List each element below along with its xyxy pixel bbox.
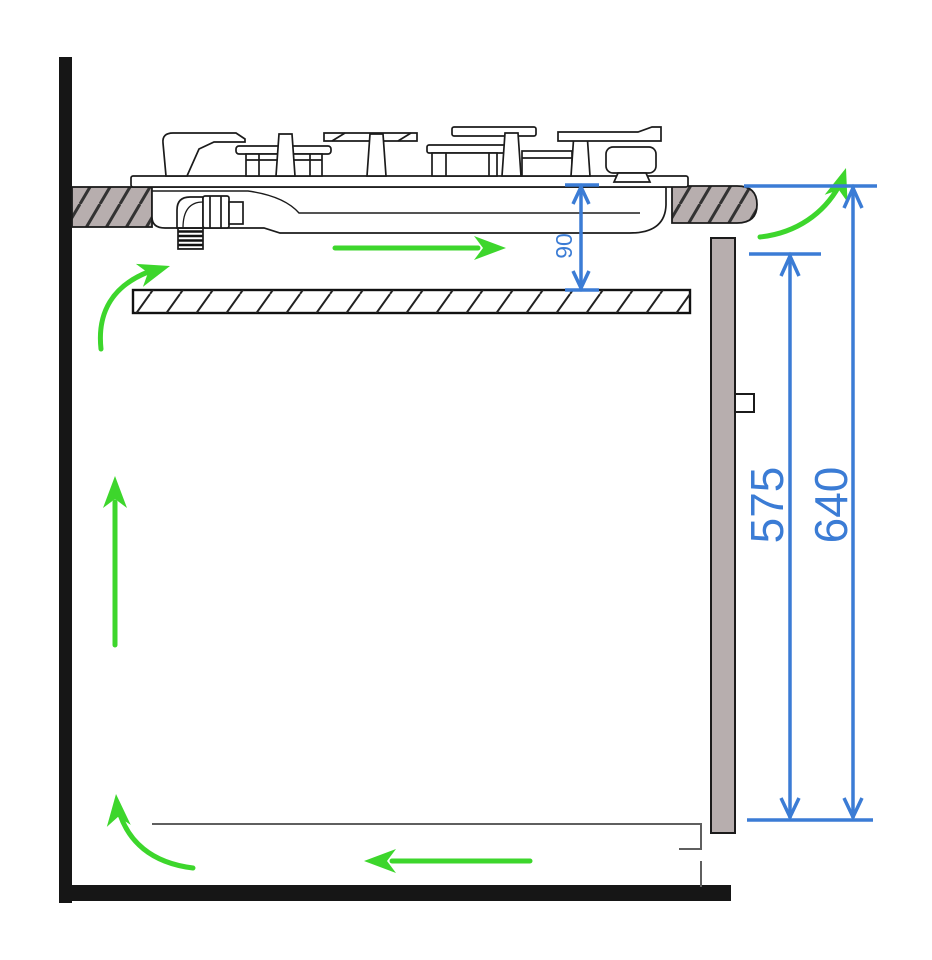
control-knob [606, 147, 656, 173]
airflow-curved-arrow-top-right [760, 164, 857, 237]
burner-body-3 [522, 151, 572, 176]
support-arm-right [558, 127, 661, 141]
pan-support-left [163, 133, 245, 176]
diagram-canvas: 90 640 575 [0, 0, 932, 960]
support-arm-top [452, 127, 536, 136]
dimension-575-label: 575 [741, 467, 793, 544]
elbow-fitting [229, 202, 243, 224]
support-post-b [367, 134, 386, 176]
support-post-a [276, 134, 295, 176]
worktop-right [672, 186, 757, 223]
worktop-left-hatch [72, 187, 152, 227]
rear-panel-board [711, 238, 735, 833]
burner-cap-2 [427, 145, 506, 153]
airflow-arrow-left-up [103, 476, 127, 645]
support-post-c [502, 133, 521, 176]
worktop-left [72, 187, 152, 227]
cabinet-base-step [152, 824, 701, 849]
hob-installation-diagram: 90 640 575 [0, 0, 932, 960]
gas-thread-nipple [178, 228, 203, 249]
intermediate-shelf [133, 290, 690, 313]
airflow-arrow-under-hob [335, 236, 506, 260]
floor-section [59, 885, 731, 901]
hob-top-flange [131, 176, 688, 187]
elbow-nut [203, 196, 229, 228]
dimension-640-label: 640 [805, 467, 857, 544]
shelf-hatch [133, 290, 690, 313]
gas-inlet-elbow [177, 196, 243, 249]
dimension-90-label: 90 [551, 233, 577, 259]
burner-body-2 [432, 153, 497, 176]
wall-section [59, 57, 72, 903]
airflow-arrow-bottom-leftward [364, 849, 530, 873]
gas-hob-cross-section [131, 127, 688, 249]
control-knob-foot [614, 173, 650, 182]
airflow-curved-arrow-bottom-left [104, 793, 193, 868]
panel-fixing-clip [735, 394, 754, 412]
pan-supports-and-burners [163, 127, 661, 182]
worktop-right-hatch [672, 186, 757, 223]
cabinet-base-outline [152, 824, 701, 887]
